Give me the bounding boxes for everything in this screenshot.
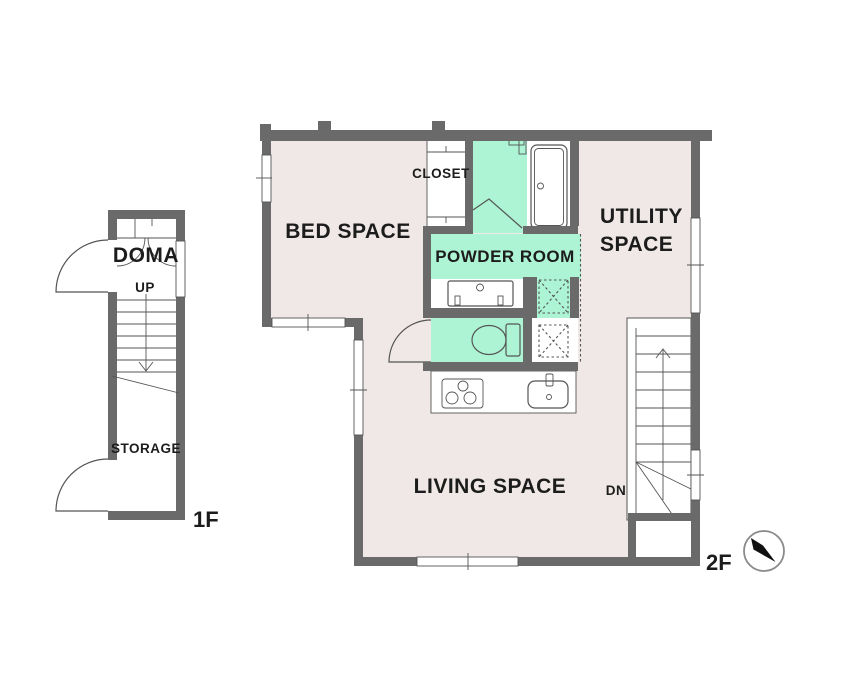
utility-space-label-line1: UTILITY: [600, 205, 683, 228]
storage-label: STORAGE: [111, 441, 181, 456]
1f-wall-bottom: [108, 511, 185, 520]
doma-label: DOMA: [113, 244, 179, 267]
floor-plan-2f: BED SPACE CLOSET POWDER ROOM UTILITY SPA…: [256, 121, 732, 575]
wall-bathtub-right: [570, 141, 579, 226]
2f-void-box-wall-left: [628, 513, 636, 566]
2f-wall-top: [262, 130, 712, 141]
washer-nook-1: [537, 277, 570, 318]
floor-tag-1f: 1F: [193, 507, 219, 532]
north-arrow-icon: [744, 531, 784, 571]
window-utility-right: [691, 218, 700, 313]
2f-void-box-wall-top: [628, 513, 700, 521]
wall-under-bathtub: [523, 226, 578, 234]
2f-wall-right: [691, 141, 700, 566]
wall-closet-shower: [465, 141, 473, 233]
wall-toilet-right: [523, 318, 532, 362]
vanity-nook: [431, 279, 523, 308]
living-space-label: LIVING SPACE: [414, 475, 567, 498]
1f-entry-door-arc: [56, 240, 108, 292]
window-living-left: [354, 340, 363, 435]
utility-space-label-line2: SPACE: [600, 233, 673, 256]
wall-washer-right: [570, 277, 579, 318]
bed-space-label: BED SPACE: [285, 220, 410, 243]
window-living-bottom: [417, 557, 518, 566]
powder-room-label: POWDER ROOM: [435, 247, 575, 266]
closet-label: CLOSET: [412, 166, 470, 181]
2f-wall-corner-topleft: [260, 124, 271, 141]
wall-kitchen-top: [423, 362, 578, 371]
2f-wall-stub-2: [432, 121, 445, 130]
dn-label: DN: [606, 483, 627, 498]
1f-storage-door-arc: [56, 459, 108, 511]
window-bed-bottom: [272, 318, 345, 327]
floor-plan-svg: DOMA UP STORAGE 1F: [0, 0, 846, 700]
wall-under-vanity: [423, 308, 530, 318]
2f-void-box-interior: [636, 521, 691, 557]
floor-tag-2f: 2F: [706, 550, 732, 575]
2f-wall-bottom: [354, 557, 700, 566]
floor-plan-1f: DOMA UP STORAGE 1F: [56, 210, 219, 532]
wall-under-closet: [423, 226, 473, 234]
1f-storage-door-gap: [108, 460, 117, 511]
2f-stairwell: [627, 318, 691, 520]
wall-bed-powder: [423, 234, 431, 318]
window-bed-left: [262, 155, 271, 202]
up-label: UP: [135, 280, 155, 295]
1f-wall-top: [108, 210, 185, 219]
2f-wall-stub-1: [318, 121, 331, 130]
floor-plan-image: DOMA UP STORAGE 1F: [0, 0, 846, 700]
